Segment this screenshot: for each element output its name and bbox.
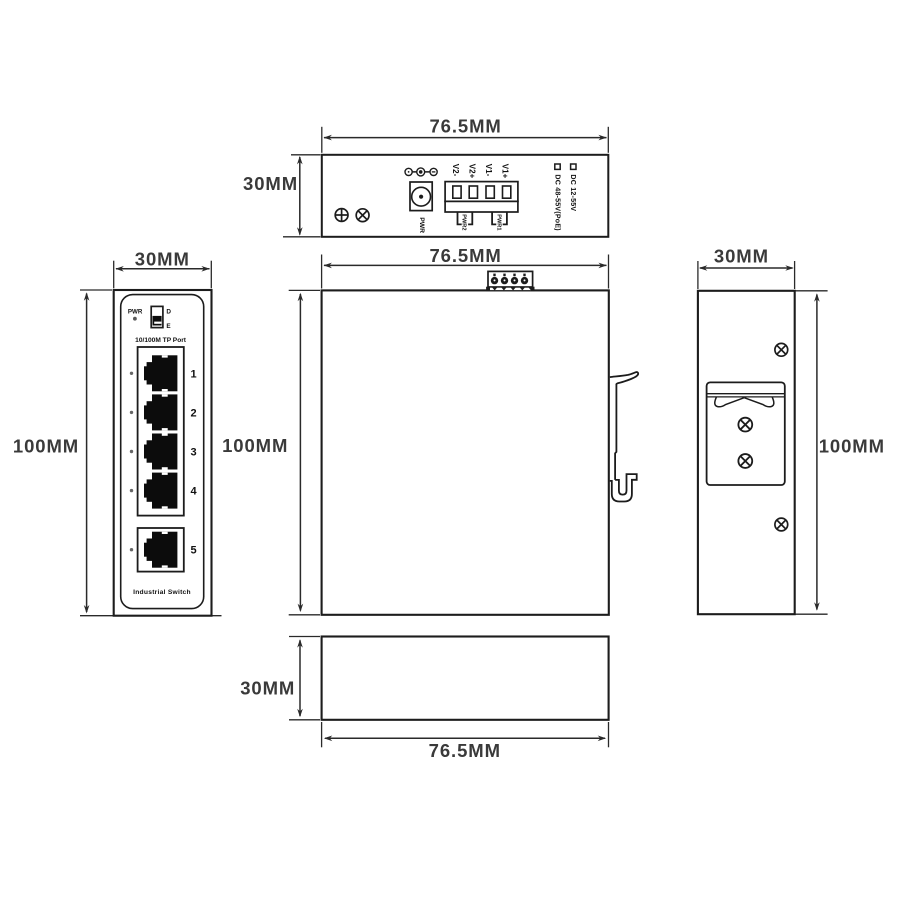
- svg-text:3: 3: [191, 447, 197, 459]
- svg-text:V1+: V1+: [500, 164, 509, 179]
- svg-text:E: E: [166, 323, 171, 330]
- svg-text:V1-: V1-: [484, 164, 493, 177]
- svg-text:2: 2: [191, 407, 197, 419]
- svg-text:DC 12-55V: DC 12-55V: [569, 174, 577, 211]
- svg-text:D: D: [166, 308, 171, 315]
- svg-text:10/100M TP Port: 10/100M TP Port: [135, 337, 187, 344]
- svg-text:76.5MM: 76.5MM: [429, 740, 501, 761]
- svg-text:30MM: 30MM: [243, 173, 298, 194]
- svg-text:100MM: 100MM: [222, 435, 288, 456]
- svg-text:100MM: 100MM: [819, 435, 885, 456]
- svg-text:5: 5: [191, 545, 197, 557]
- svg-text:76.5MM: 76.5MM: [429, 245, 501, 266]
- svg-text:100MM: 100MM: [13, 436, 79, 457]
- svg-text:V2-: V2-: [451, 164, 460, 177]
- svg-text:30MM: 30MM: [135, 249, 190, 270]
- svg-text:PWR1: PWR1: [495, 214, 501, 230]
- svg-text:30MM: 30MM: [714, 245, 769, 266]
- svg-text:76.5MM: 76.5MM: [429, 116, 501, 137]
- svg-text:30MM: 30MM: [240, 678, 295, 699]
- svg-text:V2+: V2+: [468, 164, 477, 179]
- svg-text:PWR2: PWR2: [461, 214, 467, 230]
- svg-text:DC 48-55V(PoE): DC 48-55V(PoE): [554, 174, 562, 231]
- svg-text:PWR: PWR: [128, 308, 143, 315]
- svg-text:1: 1: [191, 368, 197, 380]
- svg-text:Industrial Switch: Industrial Switch: [133, 589, 191, 596]
- svg-text:PWR: PWR: [418, 217, 425, 233]
- svg-text:4: 4: [191, 486, 198, 498]
